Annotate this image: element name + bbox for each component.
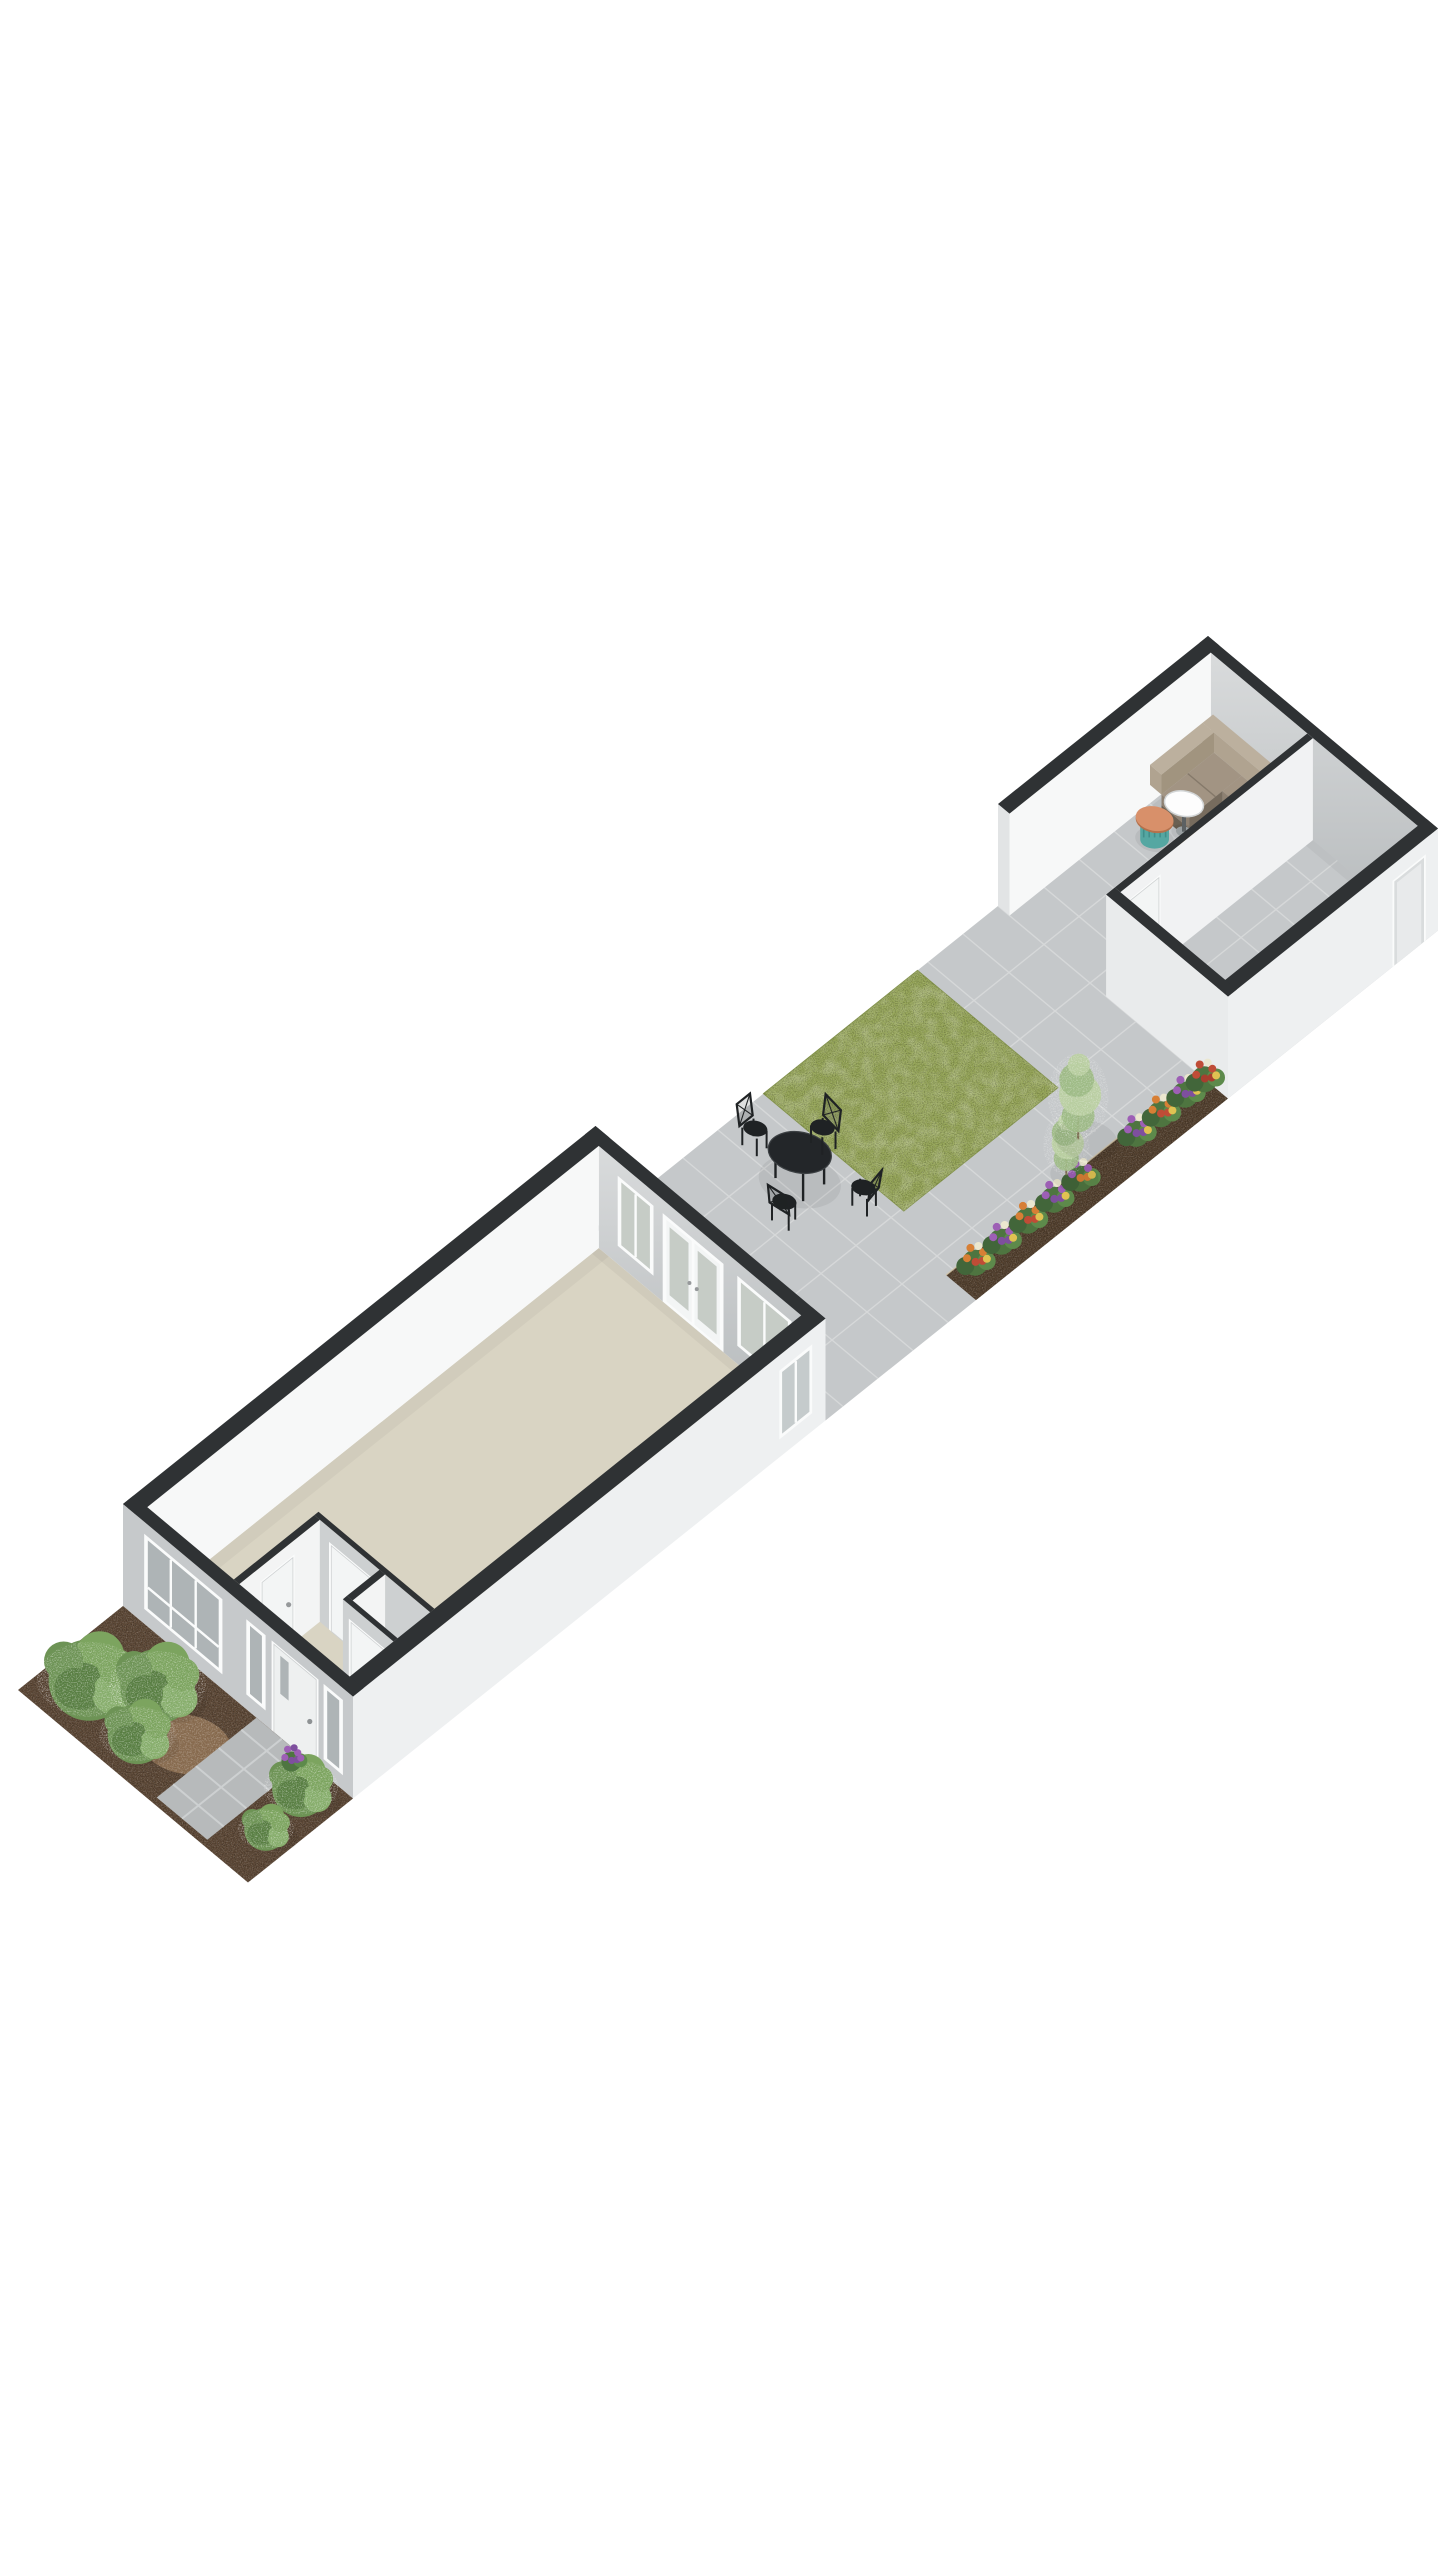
wall-end <box>998 804 1010 916</box>
door-handle <box>307 1719 312 1724</box>
window-glass <box>327 1691 339 1769</box>
door-handle <box>286 1602 291 1607</box>
floorplan-page <box>0 0 1440 2560</box>
window-glass <box>250 1626 262 1704</box>
front-door-glass <box>280 1656 288 1701</box>
floorplan-3d-render <box>0 0 1440 2560</box>
